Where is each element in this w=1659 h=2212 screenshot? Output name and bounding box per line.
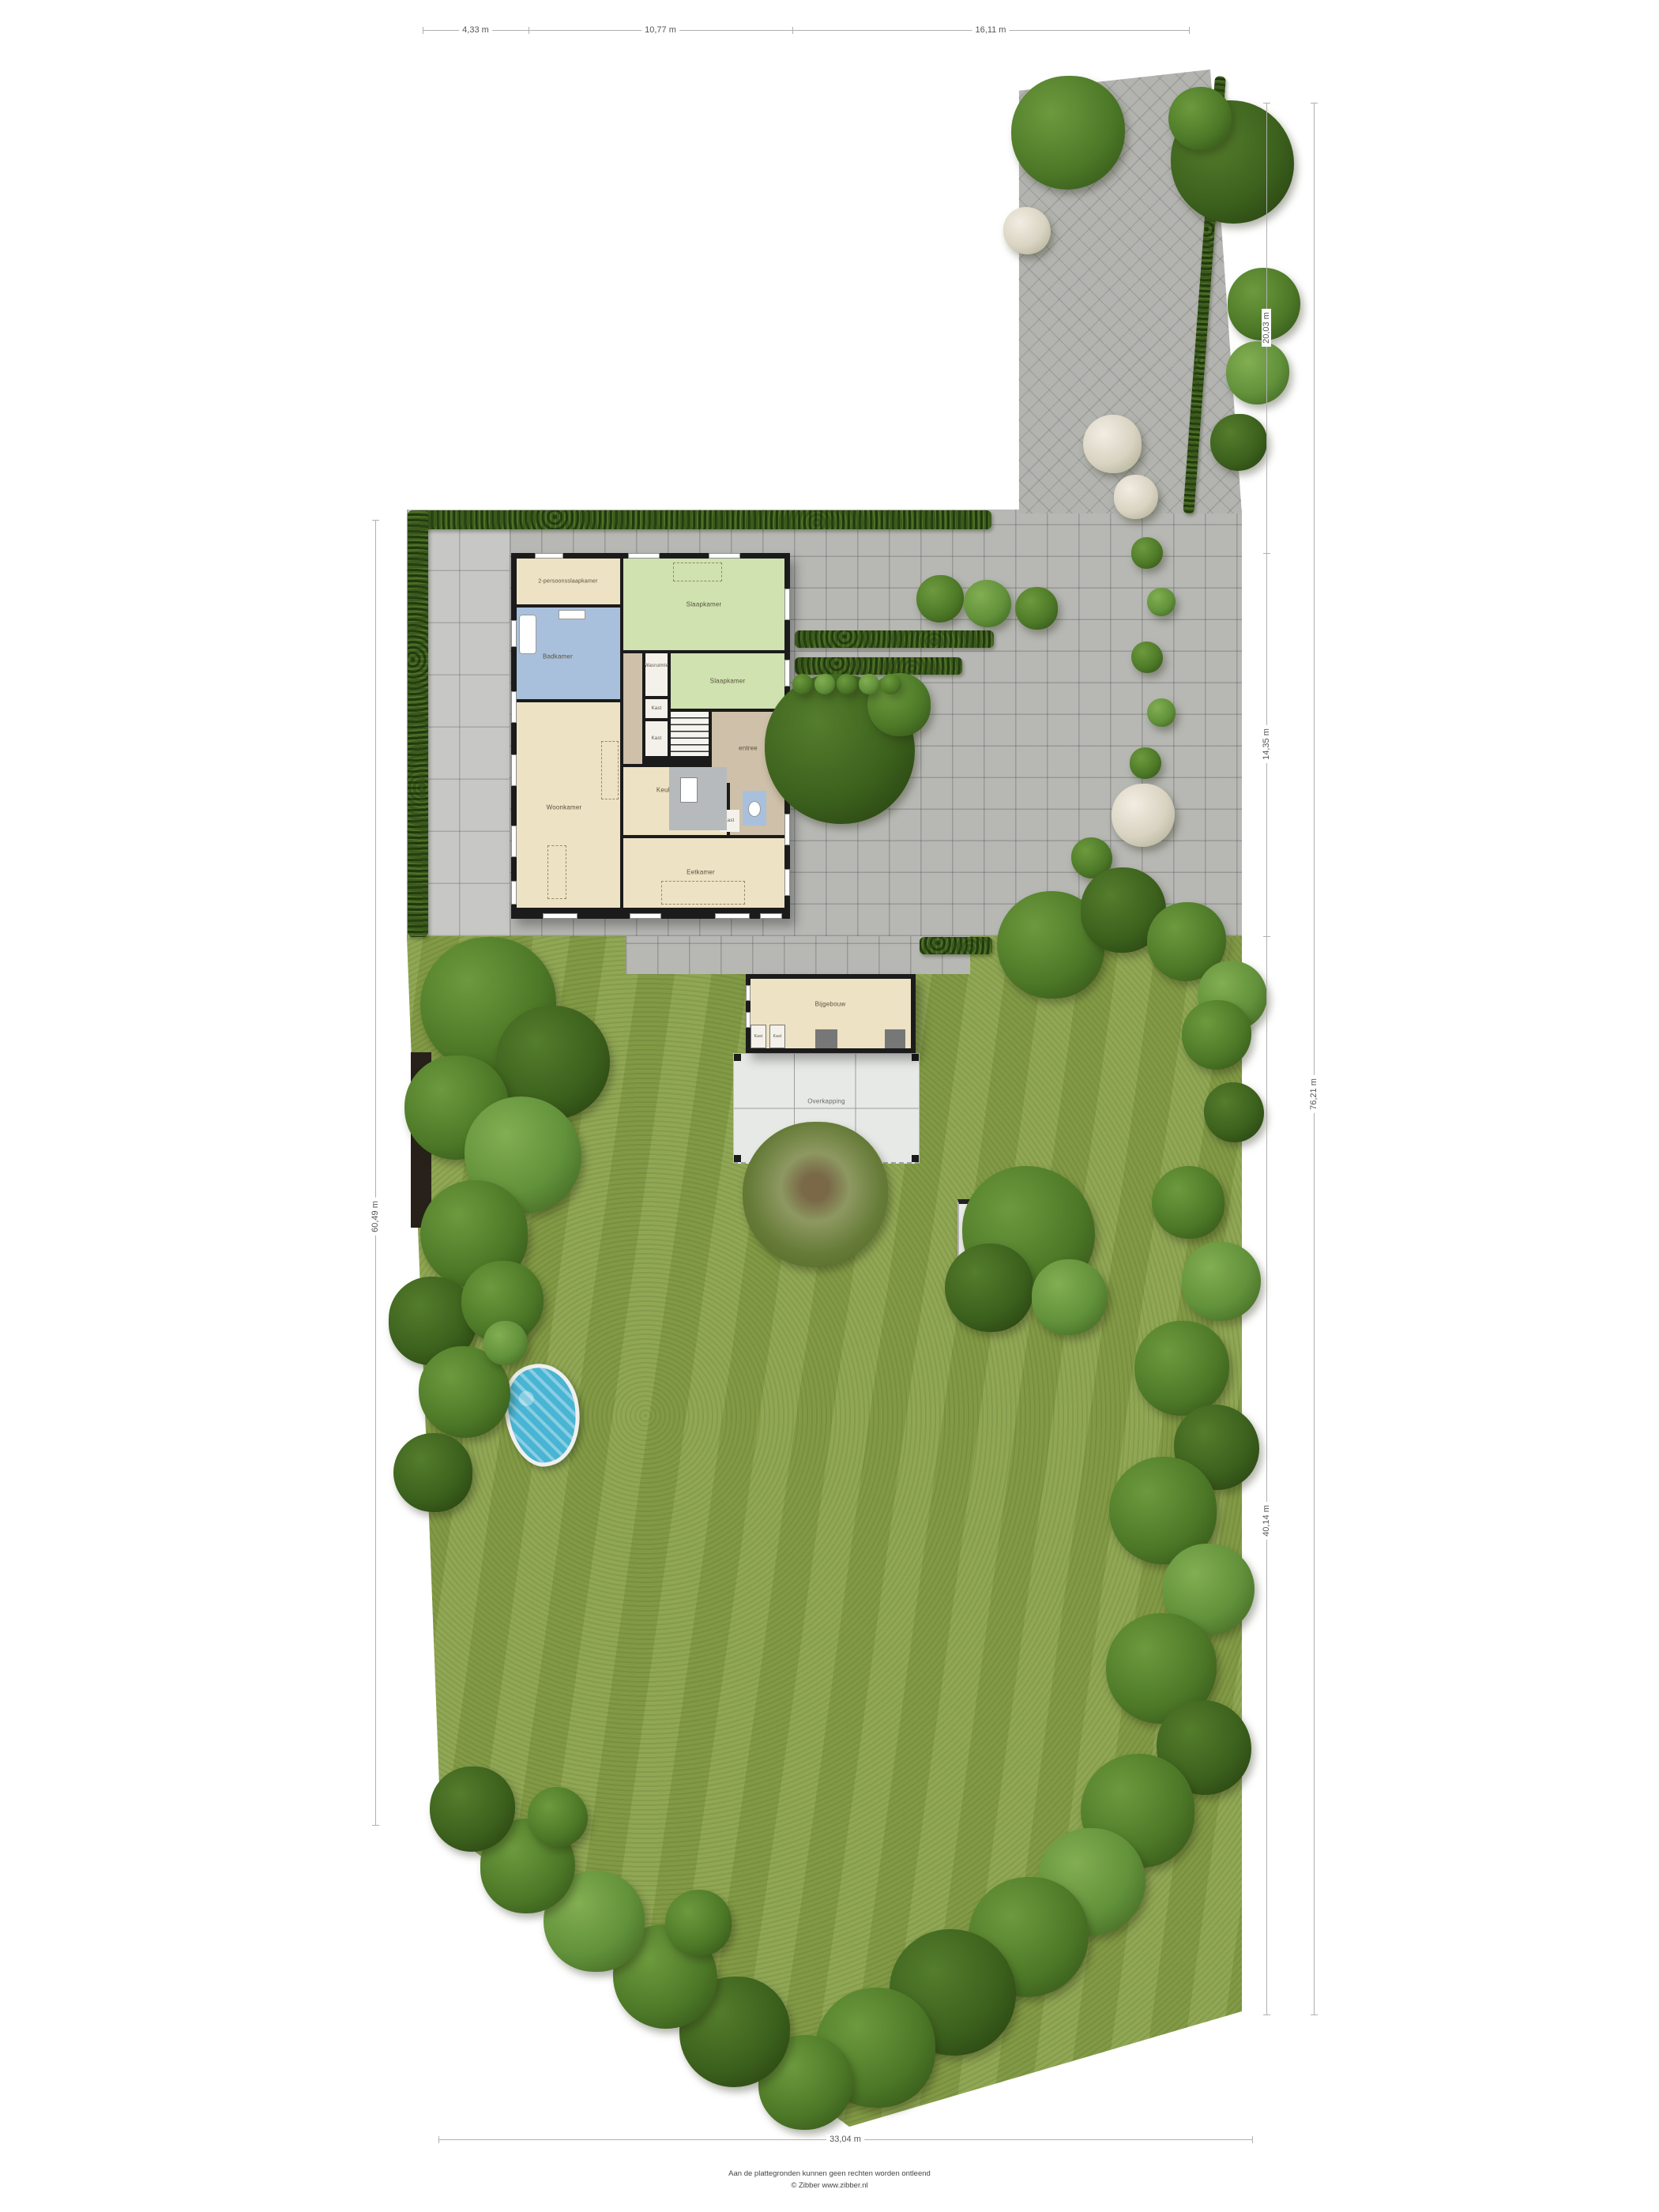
dimension-label: 40,14 m [1262, 1502, 1271, 1540]
dimension-tick [1252, 2136, 1253, 2143]
hedge [795, 630, 994, 648]
dimension-label: 14,35 m [1262, 725, 1271, 763]
tree [945, 1243, 1033, 1332]
tree [837, 674, 857, 694]
blossom-shrub [1083, 415, 1142, 473]
room-label: Overkapping [807, 1098, 845, 1105]
window [784, 660, 790, 687]
window [511, 826, 517, 857]
tree [1152, 1166, 1224, 1239]
door-opening [815, 1029, 837, 1048]
dimension-tick [1263, 103, 1270, 103]
hedge [920, 937, 992, 954]
tree [528, 1787, 588, 1847]
hedge [409, 510, 991, 529]
tree [1147, 698, 1176, 727]
room-laundry [645, 653, 668, 696]
dimension-line [1266, 103, 1267, 2014]
room-label: Kast [652, 706, 662, 711]
room-label: 2-persoonsslaapkamer [538, 579, 597, 585]
canopy-post [734, 1155, 741, 1162]
window [784, 814, 790, 845]
dimension-label: 10,77 m [641, 25, 679, 35]
tree [1210, 414, 1267, 471]
tree [665, 1890, 732, 1956]
room-label: Slaapkamer [687, 601, 722, 608]
hedge [795, 657, 962, 675]
site-plan: Overkapping Bijgebouw Kast Kast tuinhuis… [0, 0, 1659, 2212]
furniture-outline [547, 845, 566, 899]
skylight-outline [673, 562, 722, 581]
dimension-tick [1263, 553, 1270, 554]
tree [1131, 537, 1163, 569]
canopy-post [912, 1054, 919, 1061]
dimension-tick [1311, 2014, 1318, 2015]
house-floorplan: 2-persoonsslaapkamerSlaapkamerBadkamerWa… [511, 553, 790, 919]
tree [1134, 1321, 1229, 1416]
window [630, 913, 661, 919]
tree [1182, 1000, 1251, 1070]
room-label: Wasruimte [645, 664, 668, 668]
dining-table-outline [661, 881, 745, 905]
room-label: Slaapkamer [710, 678, 746, 685]
hedge [408, 510, 428, 937]
tree [743, 1122, 888, 1267]
outbuilding: Bijgebouw Kast Kast [746, 974, 916, 1053]
canopy-post [734, 1054, 741, 1061]
dimension-tick [423, 27, 423, 34]
tree [393, 1433, 472, 1512]
tree [814, 674, 835, 694]
window [784, 589, 790, 620]
room-label: Woonkamer [547, 804, 582, 811]
tree [1168, 87, 1232, 150]
tree [792, 674, 813, 694]
dimension-tick [438, 2136, 439, 2143]
dimension-label: 16,11 m [972, 25, 1010, 35]
footer-disclaimer: Aan de plattegronden kunnen geen rechten… [0, 2168, 1659, 2180]
dimension-tick [1189, 27, 1190, 34]
dimension-tick [372, 1825, 379, 1826]
window [709, 553, 740, 559]
dimension-label: 4,33 m [459, 25, 492, 35]
tree [1131, 641, 1163, 673]
dimension-tick [529, 27, 529, 34]
dimension-line [423, 30, 1189, 31]
bathtub-icon [519, 615, 536, 654]
canopy-post [912, 1155, 919, 1162]
window [746, 1012, 750, 1028]
tree [1032, 1259, 1108, 1335]
kitchen-counter [669, 767, 727, 830]
room-label: Badkamer [543, 653, 573, 660]
tree [1147, 588, 1176, 616]
window [511, 754, 517, 786]
dimension-tick [1263, 936, 1270, 937]
dimension-line [375, 520, 376, 1825]
yard-paving-extension [626, 936, 970, 976]
footer-note: Aan de plattegronden kunnen geen rechten… [0, 2168, 1659, 2191]
door-opening [885, 1029, 905, 1048]
tree [964, 580, 1011, 627]
dimension-tick [1311, 103, 1318, 103]
dimension-label: 20,03 m [1262, 309, 1271, 347]
tree [1226, 341, 1289, 404]
room-label: Kast [652, 736, 662, 741]
dimension-label: 60,49 m [371, 1198, 380, 1236]
washbasin-icon [559, 610, 585, 619]
window [511, 691, 517, 723]
blossom-shrub [1003, 207, 1051, 254]
tree [1011, 76, 1125, 190]
dimension-label: 76,21 m [1309, 1075, 1319, 1113]
dimension-tick [792, 27, 793, 34]
tree [1204, 1082, 1264, 1142]
closet-cell: Kast [750, 1025, 766, 1048]
tree [881, 674, 901, 694]
toilet-icon [749, 802, 760, 816]
room-label: entree [739, 745, 758, 752]
window [511, 881, 517, 905]
window [543, 913, 577, 919]
window [628, 553, 660, 559]
stove-icon [680, 777, 698, 803]
dimension-tick [1263, 2014, 1270, 2015]
window [746, 985, 750, 1001]
furniture-outline [601, 741, 619, 799]
window [784, 869, 790, 896]
closet-cell: Kast [769, 1025, 785, 1048]
room-label: Bijgebouw [815, 1001, 846, 1008]
tree [859, 674, 879, 694]
tree [1182, 1242, 1261, 1321]
room-label: Kast [773, 1034, 782, 1039]
window [715, 913, 750, 919]
tree [1015, 587, 1058, 630]
tree [483, 1321, 528, 1365]
blossom-shrub [1114, 475, 1158, 519]
dimension-label: 33,04 m [826, 2135, 864, 2144]
hallway [623, 653, 642, 764]
tree [1130, 747, 1161, 779]
tree [430, 1766, 515, 1852]
blossom-shrub [1112, 784, 1175, 847]
room-label: Eetkamer [687, 869, 715, 876]
footer-credit: © Zibber www.zibber.nl [0, 2180, 1659, 2191]
dimension-line [1314, 103, 1315, 2014]
room-label: Kast [754, 1034, 763, 1039]
staircase [671, 712, 709, 756]
dimension-tick [372, 520, 379, 521]
window [511, 620, 517, 647]
window [760, 913, 782, 919]
tree [916, 575, 964, 623]
window [535, 553, 563, 559]
